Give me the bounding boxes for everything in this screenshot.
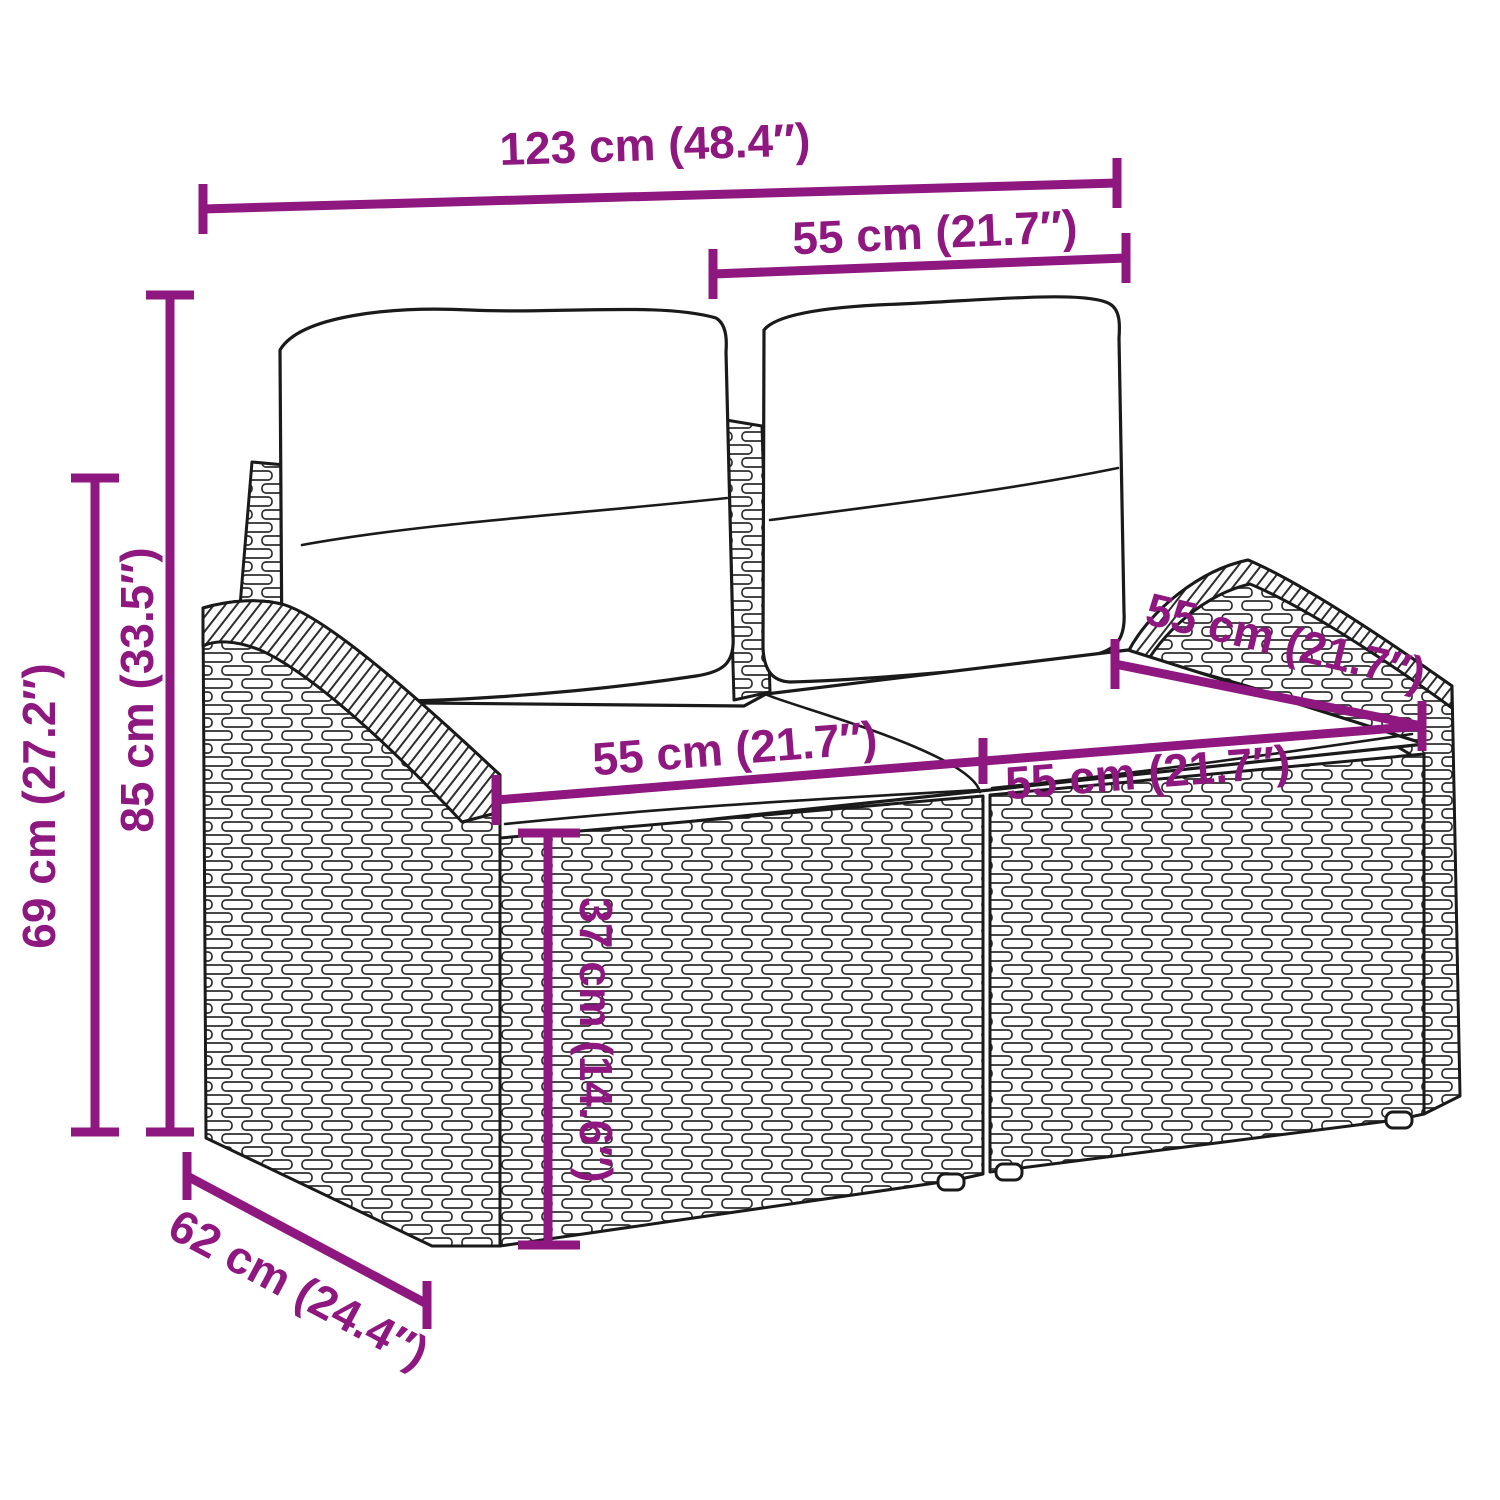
sofa-foot	[1386, 1112, 1412, 1128]
sofa-foot	[938, 1174, 964, 1190]
dim-total-height-label: 85 cm (33.5″)	[111, 547, 163, 832]
dim-backrest-width-label: 55 cm (21.7″)	[791, 200, 1078, 264]
dimension-diagram: 123 cm (48.4″) 55 cm (21.7″) 85 cm (33.5…	[0, 0, 1500, 1500]
dim-backrest-width: 55 cm (21.7″)	[713, 200, 1126, 299]
sofa-foot	[996, 1164, 1022, 1180]
dim-armrest-height-label: 69 cm (27.2″)	[13, 663, 65, 948]
dim-overall-width-label: 123 cm (48.4″)	[499, 113, 811, 175]
dim-seat-height-label: 37 cm (14.6″)	[570, 897, 622, 1182]
dim-total-height: 85 cm (33.5″)	[111, 295, 194, 1132]
dim-backrest-width-line	[713, 258, 1126, 274]
dim-armrest-height: 69 cm (27.2″)	[13, 478, 119, 1132]
right-back-cushion	[763, 297, 1124, 682]
base-module-right	[990, 754, 1424, 1172]
sofa-diagram-svg: 123 cm (48.4″) 55 cm (21.7″) 85 cm (33.5…	[0, 0, 1500, 1500]
